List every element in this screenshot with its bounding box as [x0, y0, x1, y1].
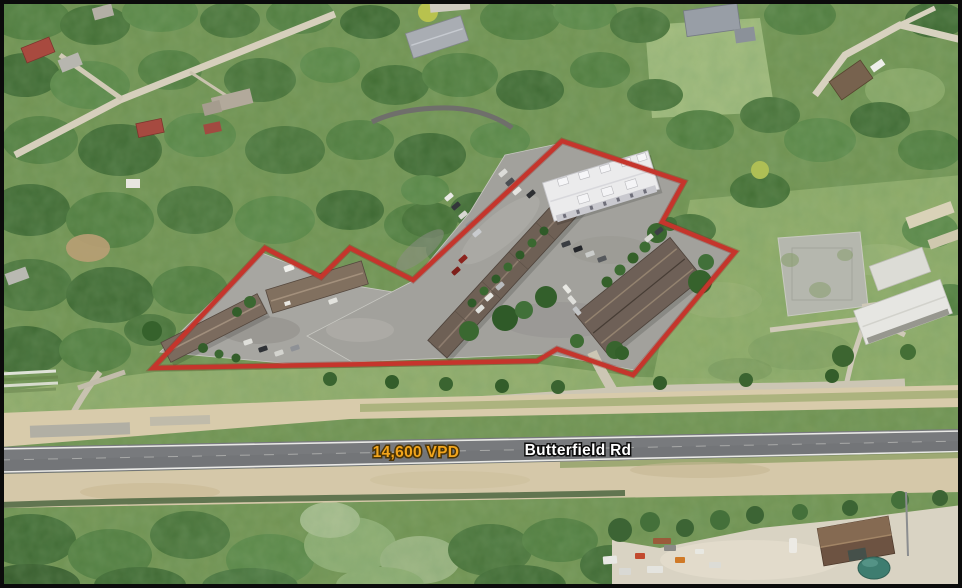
dirt-patch: [66, 234, 110, 262]
aerial-map-svg: 14,600 VPD Butterfield Rd: [0, 0, 962, 588]
shed: [126, 179, 140, 188]
aerial-photo: 14,600 VPD Butterfield Rd: [0, 0, 962, 588]
bush: [900, 344, 916, 360]
bush: [832, 345, 854, 367]
traffic-count-label: 14,600 VPD: [373, 444, 460, 461]
road-name-label: Butterfield Rd: [525, 442, 632, 459]
white-tank: [789, 538, 797, 553]
